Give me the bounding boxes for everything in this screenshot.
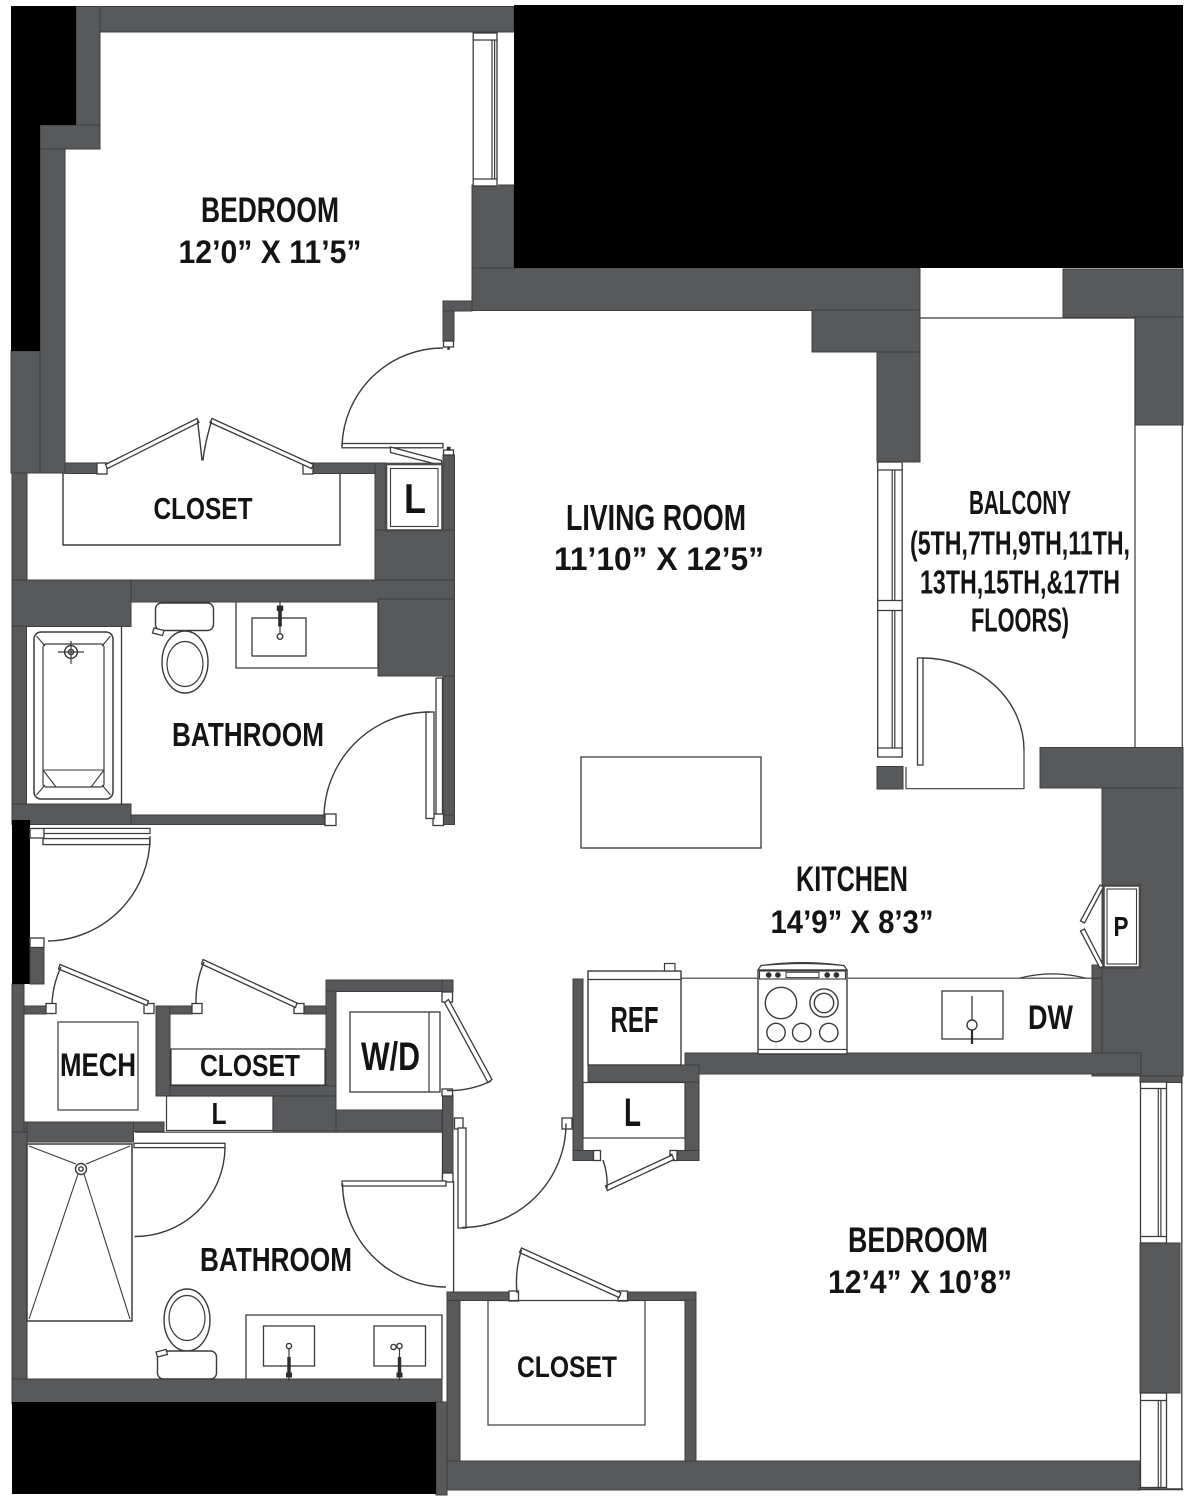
svg-text:REF: REF: [611, 999, 659, 1040]
svg-text:BALCONY: BALCONY: [969, 484, 1071, 521]
svg-text:11’10” X 12’5”: 11’10” X 12’5”: [554, 541, 764, 577]
svg-text:DW: DW: [1028, 999, 1074, 1037]
svg-text:BEDROOM: BEDROOM: [201, 191, 339, 230]
svg-text:L: L: [404, 475, 426, 522]
svg-text:12’4” X 10’8”: 12’4” X 10’8”: [828, 1264, 1012, 1300]
svg-text:CLOSET: CLOSET: [517, 1351, 617, 1384]
svg-text:BATHROOM: BATHROOM: [200, 1241, 352, 1278]
svg-text:CLOSET: CLOSET: [154, 491, 253, 526]
svg-text:CLOSET: CLOSET: [200, 1048, 300, 1083]
svg-text:W/D: W/D: [361, 1035, 420, 1079]
svg-text:MECH: MECH: [60, 1047, 136, 1083]
svg-text:KITCHEN: KITCHEN: [796, 860, 908, 899]
svg-text:BATHROOM: BATHROOM: [172, 716, 324, 753]
svg-text:L: L: [212, 1096, 227, 1131]
svg-text:L: L: [624, 1091, 641, 1135]
svg-text:LIVING ROOM: LIVING ROOM: [566, 497, 746, 538]
svg-text:FLOORS): FLOORS): [971, 602, 1069, 639]
svg-text:(5TH,7TH,9TH,11TH,: (5TH,7TH,9TH,11TH,: [910, 525, 1130, 562]
svg-text:BEDROOM: BEDROOM: [848, 1221, 988, 1260]
svg-text:14’9” X 8’3”: 14’9” X 8’3”: [771, 904, 934, 940]
svg-text:13TH,15TH,&17TH: 13TH,15TH,&17TH: [920, 564, 1120, 601]
svg-text:P: P: [1114, 911, 1129, 942]
svg-text:12’0” X 11’5”: 12’0” X 11’5”: [179, 234, 362, 270]
